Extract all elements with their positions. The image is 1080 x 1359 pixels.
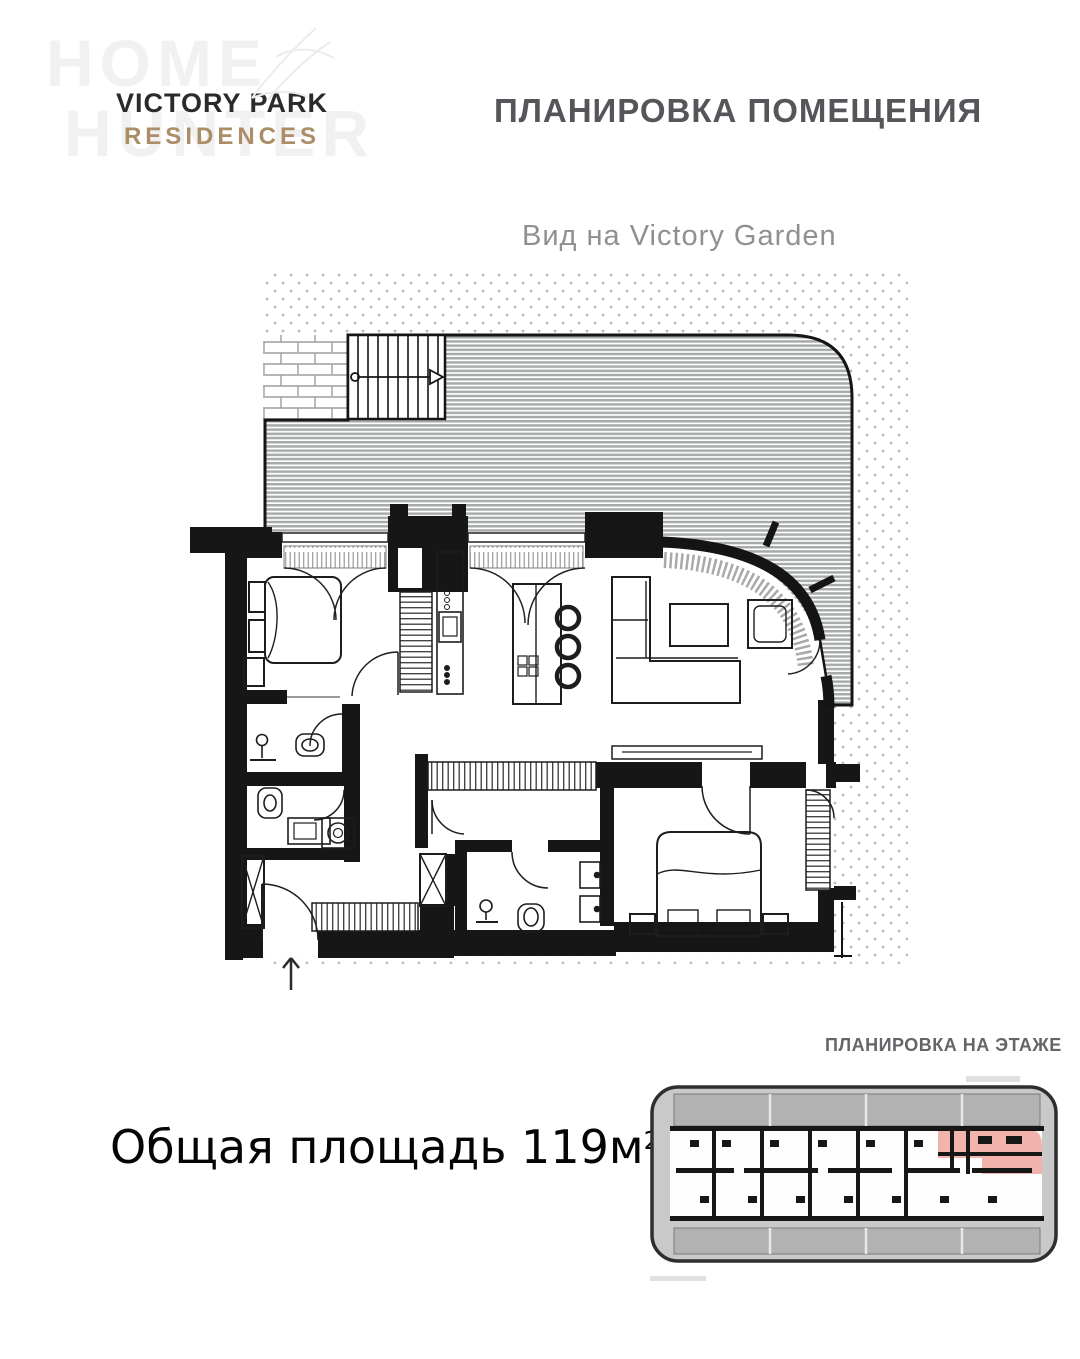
mini-floor-plan — [650, 1076, 1056, 1281]
fine-print-strip — [966, 1076, 1020, 1082]
apartment-floor-plan — [0, 0, 1080, 1359]
master-wardrobe — [806, 790, 830, 890]
kitchen-wardrobe — [400, 592, 432, 692]
terrace-stairs — [348, 335, 445, 419]
wall-niche — [398, 548, 422, 588]
apartment-interior — [225, 538, 830, 956]
hall-wardrobe — [312, 903, 418, 931]
brick-paving — [263, 335, 349, 421]
dressing-wardrobe — [428, 762, 596, 790]
eagle-watermark-icon — [252, 28, 334, 100]
fine-print-strip — [650, 1276, 706, 1281]
